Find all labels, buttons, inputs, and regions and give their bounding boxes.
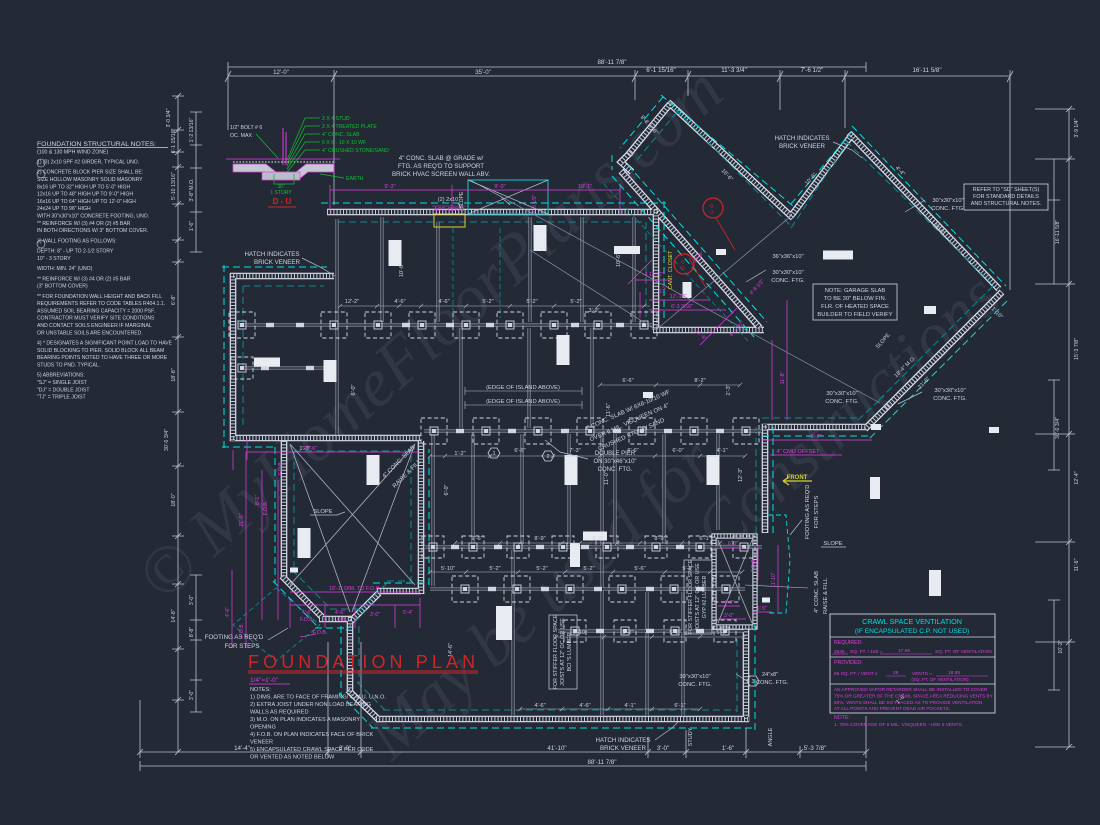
svg-text:ASSUMED SOIL BEARING CAPACITY: ASSUMED SOIL BEARING CAPACITY = 2000 PSF… (37, 308, 155, 314)
svg-text:3'-0": 3'-0" (189, 595, 195, 605)
svg-text:29: 29 (893, 670, 899, 676)
svg-text:4" CRUSHED STONE/SAND: 4" CRUSHED STONE/SAND (322, 148, 389, 154)
svg-text:TO BE 30" BELOW FIN.: TO BE 30" BELOW FIN. (824, 296, 887, 302)
svg-text:4'-6": 4'-6" (534, 703, 545, 709)
svg-text:6'-0": 6'-0" (728, 541, 738, 547)
svg-text:JOISTS AT 12" OC OR USE: JOISTS AT 12" OC OR USE (695, 563, 701, 631)
svg-text:OR UNSTABLE SOILS ARE ENCOUNTE: OR UNSTABLE SOILS ARE ENCOUNTERED. (37, 330, 143, 336)
svg-text:14'-4": 14'-4" (234, 745, 250, 752)
svg-text:CONC. FTG.: CONC. FTG. (756, 680, 789, 686)
svg-text:FOUNDATION PLAN: FOUNDATION PLAN (248, 652, 479, 672)
svg-text:F.O.B.: F.O.B. (300, 617, 314, 623)
svg-text:FLR. OF HEATED SPACE: FLR. OF HEATED SPACE (821, 304, 889, 310)
svg-text:NOTE:: NOTE: (834, 715, 850, 721)
svg-text:12'-3": 12'-3" (738, 468, 744, 482)
svg-text:30"x30"x10": 30"x30"x10" (679, 674, 710, 680)
svg-text:16'-11 5/8": 16'-11 5/8" (912, 67, 941, 74)
svg-text:FOR STIFFER FLOOR SPACE: FOR STIFFER FLOOR SPACE (553, 614, 559, 689)
svg-text:7'-3": 7'-3" (569, 448, 580, 454)
svg-text:SIZE HOLLOW MASONRY SOLID: SIZE HOLLOW MASONRY SOLID MASONRY (37, 177, 143, 183)
svg-text:F.O.B.: F.O.B. (313, 630, 328, 636)
svg-text:2: 2 (546, 454, 549, 460)
svg-text:5'-2": 5'-2" (669, 630, 680, 636)
svg-text:4'-1": 4'-1" (624, 703, 635, 709)
svg-text:** REINFORCE W/ (3) #4 OR (2): ** REINFORCE W/ (3) #4 OR (2) #5 BAR (37, 221, 131, 227)
svg-text:(IF ENCAPSULATED C.P. NOT USED: (IF ENCAPSULATED C.P. NOT USED) (855, 628, 969, 635)
svg-text:5'-6": 5'-6" (634, 566, 645, 572)
svg-text:2 X 4 TREATED PLATE: 2 X 4 TREATED PLATE (322, 124, 377, 130)
svg-text:1'-6": 1'-6" (189, 221, 195, 231)
svg-text:IN BOTH DIRECTIONS W/ 3" BOTTO: IN BOTH DIRECTIONS W/ 3" BOTTOM COVER. (37, 228, 148, 234)
svg-text:ON 30"x46"x10": ON 30"x46"x10" (593, 459, 636, 465)
svg-text:11'-10": 11'-10" (771, 572, 777, 587)
svg-text:2) CONCRETE BLOCK PIER SIZE: 2) CONCRETE BLOCK PIER SIZE SHALL BE: (37, 170, 143, 176)
svg-text:10'-2": 10'-2" (1058, 640, 1064, 653)
svg-text:12'-2": 12'-2" (345, 299, 359, 305)
svg-text:4" CONC. SLAB @ GRADE w/: 4" CONC. SLAB @ GRADE w/ (399, 155, 484, 162)
svg-text:5'-2": 5'-2" (716, 630, 727, 636)
svg-text:5'-2": 5'-2" (570, 299, 581, 305)
svg-text:4" CONC. SLAB: 4" CONC. SLAB (814, 571, 820, 613)
svg-text:11'-8": 11'-8" (780, 371, 786, 384)
svg-text:SQ. FT. / 150 =: SQ. FT. / 150 = (850, 649, 883, 655)
svg-text:1'-2": 1'-2" (454, 451, 465, 457)
svg-text:BCI 'S LUMBER: BCI 'S LUMBER (567, 632, 573, 671)
svg-text:F.O.B.: F.O.B. (751, 558, 757, 572)
svg-text:36"x36"x10": 36"x36"x10" (772, 254, 803, 260)
svg-text:6'-1": 6'-1" (699, 536, 710, 542)
svg-text:HATCH INDICATES: HATCH INDICATES (595, 737, 650, 744)
svg-text:3'-9": 3'-9" (589, 308, 600, 314)
svg-text:BEARING POINTS NOTED TO HAVE T: BEARING POINTS NOTED TO HAVE THREE OR MO… (37, 355, 168, 361)
svg-text:1: 1 (492, 451, 495, 457)
svg-text:3: 3 (751, 679, 754, 685)
svg-text:6'-1 15/16": 6'-1 15/16" (646, 67, 676, 74)
svg-text:4" CMU OFFSET: 4" CMU OFFSET (776, 449, 820, 455)
svg-text:"DJ" = DOUBLE JOIST: "DJ" = DOUBLE JOIST (37, 387, 89, 393)
svg-text:4 13/16": 4 13/16" (645, 272, 664, 278)
svg-text:"TJ" = TRIPLE JOIST: "TJ" = TRIPLE JOIST (37, 395, 86, 401)
svg-text:AND STRUCTURAL NOTES.: AND STRUCTURAL NOTES. (971, 201, 1041, 207)
svg-text:(3" BOTTOM COVER): (3" BOTTOM COVER) (37, 284, 88, 290)
svg-text:SLOPE: SLOPE (459, 191, 465, 208)
svg-text:JOISTS AT 12" OC OR USE: JOISTS AT 12" OC OR USE (560, 618, 566, 686)
svg-text:CANT. CLOSET: CANT. CLOSET (668, 250, 674, 289)
svg-text:WALLS AS REQUIRED: WALLS AS REQUIRED (250, 710, 309, 716)
svg-text:CONC. FTG.: CONC. FTG. (933, 396, 967, 402)
svg-text:4'-6": 4'-6" (302, 610, 312, 616)
svg-text:18.85: 18.85 (948, 670, 960, 676)
svg-text:1'-6": 1'-6" (722, 745, 734, 752)
svg-text:30'-0 3/4": 30'-0 3/4" (164, 429, 170, 451)
svg-text:17.66: 17.66 (898, 648, 910, 654)
svg-text:SLOPE: SLOPE (313, 509, 332, 515)
svg-text:24"x8": 24"x8" (762, 672, 778, 678)
svg-text:4'-6": 4'-6" (579, 703, 590, 709)
svg-text:30"x30"x10": 30"x30"x10" (932, 198, 963, 204)
svg-text:5'-2": 5'-2" (811, 434, 822, 440)
svg-text:5'-3 7/8": 5'-3 7/8" (804, 745, 827, 752)
svg-text:FTG. AS REQ'D TO SUPPORT: FTG. AS REQ'D TO SUPPORT (398, 163, 484, 170)
svg-text:7'-6 1/2": 7'-6 1/2" (801, 67, 824, 74)
svg-text:12'-4": 12'-4" (1074, 471, 1080, 484)
svg-text:REFER TO "SD" SHEET(S): REFER TO "SD" SHEET(S) (973, 187, 1040, 193)
svg-text:FOOTING AS REQ'D: FOOTING AS REQ'D (805, 485, 811, 540)
svg-text:4'-0": 4'-0" (724, 600, 734, 606)
svg-text:F.O.B.: F.O.B. (278, 461, 284, 475)
svg-text:SOLID BLOCKING TO PIER. SOLID: SOLID BLOCKING TO PIER. SOLID BLOCK ALL … (37, 348, 164, 354)
svg-text:5'-5": 5'-5" (682, 566, 693, 572)
svg-text:1. 75% COVERAGE OF 6 MIL. VIS: 1. 75% COVERAGE OF 6 MIL. VISQUEEN - USE… (834, 722, 963, 728)
svg-text:GYP #2 LUMBER: GYP #2 LUMBER (702, 576, 708, 619)
svg-text:HATCH INDICATES: HATCH INDICATES (244, 251, 299, 258)
svg-text:FOR STEPS: FOR STEPS (224, 643, 259, 650)
svg-text:FRONT: FRONT (787, 475, 808, 481)
svg-text:BRICK HVAC SCREEN WALL ABV.: BRICK HVAC SCREEN WALL ABV. (392, 171, 490, 178)
svg-text:BRICK VENEER: BRICK VENEER (779, 143, 826, 150)
svg-text:9'-0": 9'-0" (494, 184, 505, 190)
svg-text:5'-2": 5'-2" (482, 299, 493, 305)
svg-text:WITH 30"x30"x10" CONCRETE FOOT: WITH 30"x30"x10" CONCRETE FOOTING, UNO. (37, 214, 149, 220)
svg-text:2 X 4 STUD: 2 X 4 STUD (322, 116, 350, 122)
svg-text:14'-8": 14'-8" (171, 609, 177, 622)
svg-text:75% OR GREATER OF THE CRAWL SP: 75% OR GREATER OF THE CRAWL SPACE AREA R… (834, 693, 994, 698)
svg-text:STUDY: STUDY (688, 727, 694, 746)
svg-text:9'-3": 9'-3" (384, 184, 395, 190)
svg-text:4'-1": 4'-1" (716, 448, 727, 454)
svg-text:1/2" BOLT # 6: 1/2" BOLT # 6 (230, 125, 262, 131)
svg-text:NOTES:: NOTES: (250, 687, 271, 693)
svg-text:3) M.O. ON PLAN INDICATES A MA: 3) M.O. ON PLAN INDICATES A MASONRY (250, 717, 360, 723)
svg-text:5) ABBREVIATIONS:: 5) ABBREVIATIONS: (37, 373, 85, 379)
svg-text:6'-0": 6'-0" (672, 448, 683, 454)
svg-text:5'-2": 5'-2" (583, 566, 594, 572)
svg-text:RAISE & FILL: RAISE & FILL (823, 577, 829, 614)
svg-text:15'-3 7/8": 15'-3 7/8" (1074, 338, 1080, 360)
svg-text:11'-3 3/4": 11'-3 3/4" (721, 67, 747, 74)
svg-text:30"x30"x10": 30"x30"x10" (934, 388, 965, 394)
svg-text:OPENING: OPENING (250, 725, 276, 731)
svg-text:6'-1": 6'-1" (674, 703, 685, 709)
svg-text:5'-2": 5'-2" (622, 630, 633, 636)
svg-text:2) EXTRA JOIST UNDER NON LOAD: 2) EXTRA JOIST UNDER NON LOAD BEARING (250, 702, 371, 708)
svg-text:9'-6": 9'-6" (471, 536, 482, 542)
svg-text:6'-6": 6'-6" (514, 448, 525, 454)
svg-text:4'-6": 4'-6" (335, 610, 345, 616)
svg-text:10'-6": 10'-6" (616, 253, 622, 267)
svg-text:10" - 3 STORY: 10" - 3 STORY (37, 256, 71, 262)
svg-text:6'-8": 6'-8" (171, 295, 177, 305)
svg-text:3'-0": 3'-0" (370, 612, 380, 618)
svg-text:** REINFORCE W/ (3) #4 OR (2): ** REINFORCE W/ (3) #4 OR (2) #5 BAR (37, 276, 131, 282)
svg-text:88'-11 7/8": 88'-11 7/8" (597, 59, 626, 66)
svg-text:35'-0": 35'-0" (475, 69, 491, 76)
svg-text:16'-1" DIM. TO F.O.B.: 16'-1" DIM. TO F.O.B. (329, 586, 381, 592)
svg-text:5'-2": 5'-2" (536, 566, 547, 572)
svg-text:CONTRACTOR MUST VERIFY SITE CO: CONTRACTOR MUST VERIFY SITE CONDITIONS (37, 316, 155, 322)
svg-text:30"x30"x10": 30"x30"x10" (772, 270, 803, 276)
svg-text:5'-2": 5'-2" (526, 299, 537, 305)
svg-text:REQUIREMENTS REFER TO CODE TAB: REQUIREMENTS REFER TO CODE TABLES R404.1… (37, 301, 165, 307)
svg-text:F.O.B.: F.O.B. (239, 623, 245, 637)
svg-text:1'-5": 1'-5" (757, 606, 767, 612)
svg-text:CONC. FTG.: CONC. FTG. (678, 682, 712, 688)
svg-text:CONC. FTG.: CONC. FTG. (825, 399, 859, 405)
svg-text:6'-3 3/16": 6'-3 3/16" (671, 304, 693, 310)
svg-text:5'-10": 5'-10" (573, 630, 587, 636)
svg-text:SLOPE: SLOPE (823, 541, 842, 547)
svg-text:VENEER: VENEER (250, 740, 273, 746)
svg-text:4) * DESIGNATES A SIGNIFICANT: 4) * DESIGNATES A SIGNIFICANT POINT LOAD… (37, 341, 173, 347)
svg-text:8'-9": 8'-9" (534, 536, 545, 542)
svg-text:4'-5 1/2": 4'-5 1/2" (532, 194, 538, 213)
svg-text:AND CONTACT SOILS ENGINEER IF: AND CONTACT SOILS ENGINEER IF MARGINAL (37, 323, 152, 329)
svg-text:6'-1 15/16": 6'-1 15/16" (171, 128, 177, 153)
svg-text:F.O.B.: F.O.B. (263, 501, 269, 515)
svg-text:5'-10 13/16": 5'-10 13/16" (171, 172, 177, 200)
svg-text:3'-0": 3'-0" (657, 745, 669, 752)
svg-text:"SJ" = SINGLE JOIST: "SJ" = SINGLE JOIST (37, 380, 87, 386)
svg-text:REQUIRED:: REQUIRED: (834, 640, 863, 646)
svg-text:2645: 2645 (834, 649, 845, 655)
svg-text:OR VENTED AS NOTED BELOW: OR VENTED AS NOTED BELOW (250, 755, 335, 761)
svg-text:18'-8": 18'-8" (171, 368, 177, 381)
svg-text:8'-8": 8'-8" (189, 627, 195, 637)
svg-text:3'-0 3/4": 3'-0 3/4" (166, 108, 172, 127)
svg-text:12x16 UP TO 48" HIGH UP: 12x16 UP TO 48" HIGH UP TO 9'-0" HIGH (37, 192, 133, 198)
svg-text:16x16 UP TO 64" HIGH UP: 16x16 UP TO 64" HIGH UP TO 12'-0" HIGH (37, 199, 136, 205)
svg-text:FOOTING AS REQ'D: FOOTING AS REQ'D (205, 634, 264, 641)
svg-text:30"x30"x10": 30"x30"x10" (826, 391, 857, 397)
svg-text:4'-6": 4'-6" (438, 299, 449, 305)
svg-text:24x24 UP TO 96" HIGH: 24x24 UP TO 96" HIGH (37, 206, 91, 212)
svg-text:SQ. FT. OF VENTILATION: SQ. FT. OF VENTILATION (935, 649, 992, 655)
svg-text:STUDS TO PND. TYPICAL.: STUDS TO PND. TYPICAL. (37, 362, 100, 368)
svg-text:50%. VENTS SHALL BE SO PLACED: 50%. VENTS SHALL BE SO PLACED AS TO PROV… (834, 700, 982, 705)
svg-text:CONC. FTG.: CONC. FTG. (598, 467, 633, 473)
svg-text:3'-8" M.O.: 3'-8" M.O. (189, 178, 195, 201)
svg-text:6'-6": 6'-6" (622, 378, 633, 384)
svg-text:OC. MAX: OC. MAX (230, 133, 252, 139)
svg-text:ANGLE: ANGLE (768, 727, 774, 746)
svg-text:30'-0 3/4": 30'-0 3/4" (1055, 417, 1061, 439)
svg-text:12'-0": 12'-0" (273, 69, 289, 76)
svg-text:(SQ. FT. OF VENTILATION): (SQ. FT. OF VENTILATION) (911, 677, 969, 682)
svg-text:1 STORY: 1 STORY (270, 190, 292, 196)
svg-text:1) (3) 2x10 SPF #2 GIRDER, T: 1) (3) 2x10 SPF #2 GIRDER, TYPICAL UNO. (37, 160, 139, 166)
svg-text:D - U: D - U (273, 197, 292, 206)
svg-text:4'-6": 4'-6" (225, 607, 231, 617)
svg-text:8'-1": 8'-1" (255, 495, 261, 505)
svg-text:(EDGE OF ISLAND ABOVE): (EDGE OF ISLAND ABOVE) (486, 399, 560, 405)
svg-text:21'-5": 21'-5" (239, 513, 245, 526)
svg-text:(EDGE OF ISLAND ABOVE): (EDGE OF ISLAND ABOVE) (486, 385, 560, 391)
svg-text:88'-11 7/8": 88'-11 7/8" (587, 759, 616, 766)
svg-text:41'-10": 41'-10" (547, 745, 566, 752)
svg-text:FOR STEPS: FOR STEPS (814, 495, 820, 528)
svg-text:3'-9 1/4": 3'-9 1/4" (1074, 118, 1080, 137)
svg-text:4'-6": 4'-6" (394, 299, 405, 305)
svg-text:(100 & 130 MPH WIND ZONE): (100 & 130 MPH WIND ZONE) (37, 149, 108, 155)
svg-text:HATCH INDICATES: HATCH INDICATES (774, 135, 829, 142)
svg-text:CONC. FTG.: CONC. FTG. (931, 206, 965, 212)
svg-text:8'-9": 8'-9" (654, 536, 665, 542)
svg-text:EARTH: EARTH (346, 176, 364, 182)
svg-text:BRICK VENEER: BRICK VENEER (600, 745, 647, 752)
svg-text:8'-9": 8'-9" (592, 536, 603, 542)
svg-text:** FOR FOUNDATION WALL HEIGHT: ** FOR FOUNDATION WALL HEIGHT AND BACK F… (37, 294, 162, 300)
svg-text:FOR STANDARD DETAILS: FOR STANDARD DETAILS (973, 194, 1039, 200)
svg-text:4" CONC. SLAB: 4" CONC. SLAB (322, 132, 360, 138)
svg-text:10'-6": 10'-6" (399, 263, 405, 277)
svg-text:F.O.B.: F.O.B. (333, 617, 347, 623)
svg-text:BUILDER TO FIELD VERIFY: BUILDER TO FIELD VERIFY (817, 312, 892, 318)
svg-text:NOTE: GARAGE SLAB: NOTE: GARAGE SLAB (825, 288, 886, 294)
svg-text:3'-0": 3'-0" (189, 690, 195, 700)
svg-text:2'-3": 2'-3" (726, 384, 732, 395)
svg-text:(2) 2x10: (2) 2x10 (438, 197, 459, 203)
svg-text:FOUNDATION STRUCTURAL NOTES:: FOUNDATION STRUCTURAL NOTES: (37, 141, 156, 148)
svg-text:16'-11 5/8": 16'-11 5/8" (1055, 220, 1061, 245)
svg-text:11'-6": 11'-6" (1074, 558, 1080, 571)
svg-text:8'-2": 8'-2" (694, 378, 705, 384)
svg-text:6 X 6 - 10 X 10 WF: 6 X 6 - 10 X 10 WF (322, 140, 366, 146)
svg-text:PROVIDED:: PROVIDED: (834, 660, 863, 666)
svg-text:10'-1": 10'-1" (578, 184, 592, 190)
svg-text:1) DIMS. ARE TO FACE OF FRAMI: 1) DIMS. ARE TO FACE OF FRAMING/ C.M.U. … (250, 695, 386, 701)
svg-text:1'-2 13/16": 1'-2 13/16" (189, 117, 195, 142)
svg-text:6'-0": 6'-0" (351, 384, 357, 395)
svg-text:3) WALL FOOTING AS FOLLOWS:: 3) WALL FOOTING AS FOLLOWS: (37, 238, 117, 244)
svg-text:22'-6": 22'-6" (303, 446, 318, 452)
svg-text:6'-0": 6'-0" (444, 484, 450, 495)
svg-text:5) ENCAPSULATED CRAWL SPACE PE: 5) ENCAPSULATED CRAWL SPACE PER CODE (250, 747, 374, 753)
svg-text:AT ALL POINTS AND PREVENT DEAD: AT ALL POINTS AND PREVENT DEAD AIR POCKE… (834, 706, 950, 711)
svg-text:8x16 UP TO 32" HIGH UP: 8x16 UP TO 32" HIGH UP TO 5'-0" HIGH (37, 184, 131, 190)
svg-text:ACC. DOOR: ACC. DOOR (434, 207, 465, 213)
svg-text:1/4"=1'-0": 1/4"=1'-0" (250, 677, 279, 684)
svg-text:CRAWL SPACE VENTILATION: CRAWL SPACE VENTILATION (862, 617, 962, 626)
svg-text:4) F.O.B. ON PLAN INDICATES FA: 4) F.O.B. ON PLAN INDICATES FACE OF BRIC… (250, 732, 374, 738)
svg-text:12'-10": 12'-10" (670, 294, 687, 300)
svg-text:5'-2": 5'-2" (489, 566, 500, 572)
svg-text:WIDTH: MIN. 24" (UNO): WIDTH: MIN. 24" (UNO) (37, 266, 93, 272)
svg-text:18'-0": 18'-0" (171, 493, 177, 506)
svg-text:11'-0": 11'-0" (604, 471, 610, 485)
svg-text:5'-4": 5'-4" (403, 610, 413, 616)
svg-text:65 SQ. FT. / VENT x: 65 SQ. FT. / VENT x (834, 671, 878, 677)
svg-text:DEPTH: 8" - UP TO 2-1/2 STORY: DEPTH: 8" - UP TO 2-1/2 STORY (37, 249, 114, 255)
svg-text:CONC. FTG.: CONC. FTG. (771, 278, 805, 284)
svg-text:3'-0": 3'-0" (724, 613, 734, 619)
svg-text:AN APPROVED VAPOR RETARDER SHA: AN APPROVED VAPOR RETARDER SHALL BE INST… (834, 687, 988, 692)
svg-text:BRICK VENEER: BRICK VENEER (254, 259, 301, 266)
svg-text:5'-10": 5'-10" (441, 566, 455, 572)
